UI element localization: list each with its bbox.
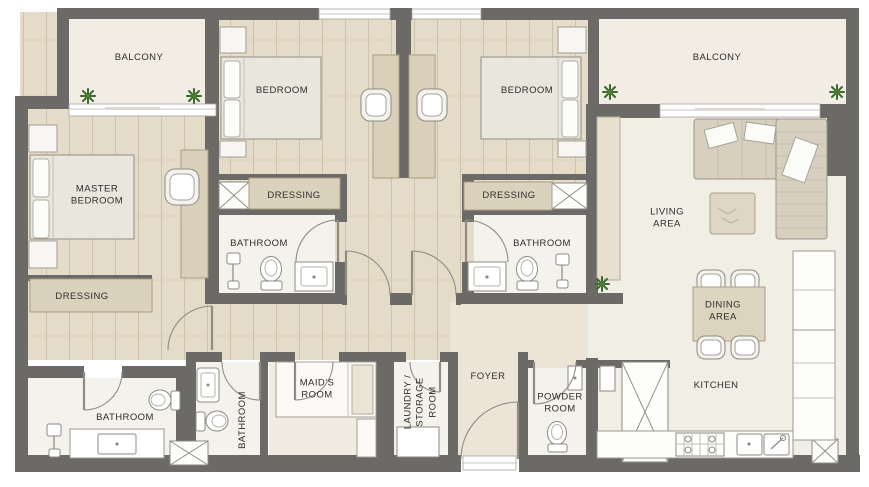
label-maids-room: MAID'S ROOM [300,378,335,403]
label-master-bedroom: MASTER BEDROOM [71,184,123,209]
label-powder-room: POWDER ROOM [537,392,582,417]
label-balcony-left: BALCONY [115,52,164,64]
label-maids-bathroom: BATHROOM [237,391,249,449]
label-bedroom-left: BEDROOM [256,85,308,97]
label-bedroom-right: BEDROOM [501,85,553,97]
label-bathroom-right: BATHROOM [513,238,571,250]
label-living-area: LIVING AREA [650,207,684,232]
label-kitchen: KITCHEN [694,380,739,392]
label-dressing-left: DRESSING [267,190,320,202]
label-dining-area: DINING AREA [705,300,741,325]
label-balcony-right: BALCONY [693,52,742,64]
label-master-bathroom: BATHROOM [96,412,154,424]
label-dressing-right: DRESSING [482,190,535,202]
floor-plan: BALCONY BEDROOM BEDROOM BALCONY MASTER B… [0,0,869,487]
label-foyer: FOYER [471,371,506,383]
room-labels: BALCONY BEDROOM BEDROOM BALCONY MASTER B… [0,0,869,487]
label-laundry-storage: LAUNDRY / STORAGE ROOM [402,375,439,429]
label-bathroom-left: BATHROOM [230,238,288,250]
label-master-dressing: DRESSING [55,291,108,303]
